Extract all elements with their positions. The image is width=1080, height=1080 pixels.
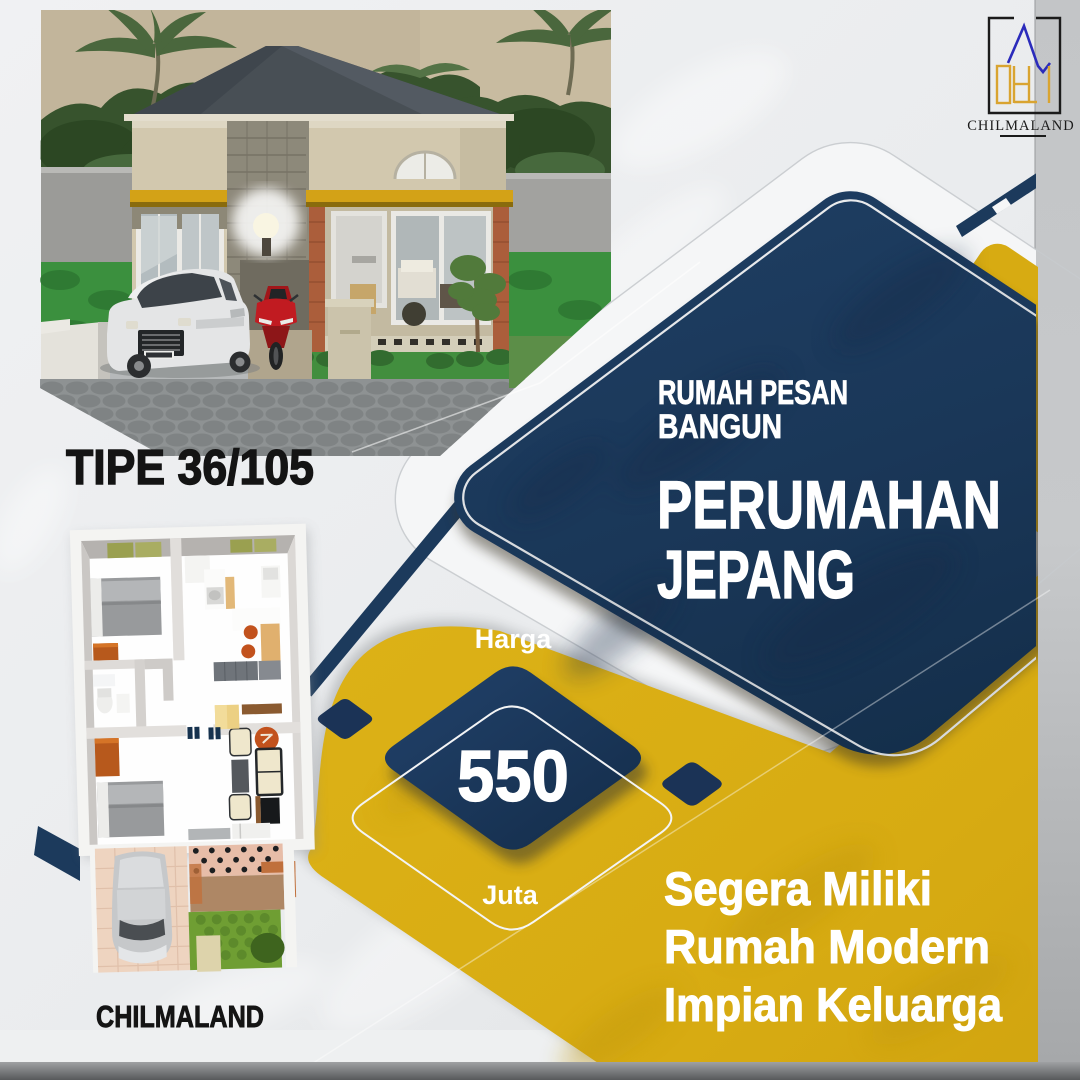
svg-text:Juta: Juta: [482, 880, 539, 910]
svg-text:CHILMALAND: CHILMALAND: [96, 999, 264, 1034]
svg-text:PERUMAHAN: PERUMAHAN: [657, 467, 1001, 543]
svg-text:Harga: Harga: [475, 624, 553, 654]
svg-text:Rumah Modern: Rumah Modern: [664, 920, 990, 973]
svg-text:Impian Keluarga: Impian Keluarga: [664, 978, 1003, 1031]
svg-text:JEPANG: JEPANG: [657, 537, 855, 613]
svg-text:CHILMALAND: CHILMALAND: [967, 118, 1074, 134]
svg-text:TIPE 36/105: TIPE 36/105: [66, 441, 314, 495]
svg-text:BANGUN: BANGUN: [658, 408, 782, 446]
svg-text:RUMAH PESAN: RUMAH PESAN: [658, 374, 848, 412]
svg-text:550: 550: [457, 737, 569, 817]
svg-text:Segera Miliki: Segera Miliki: [664, 862, 932, 915]
